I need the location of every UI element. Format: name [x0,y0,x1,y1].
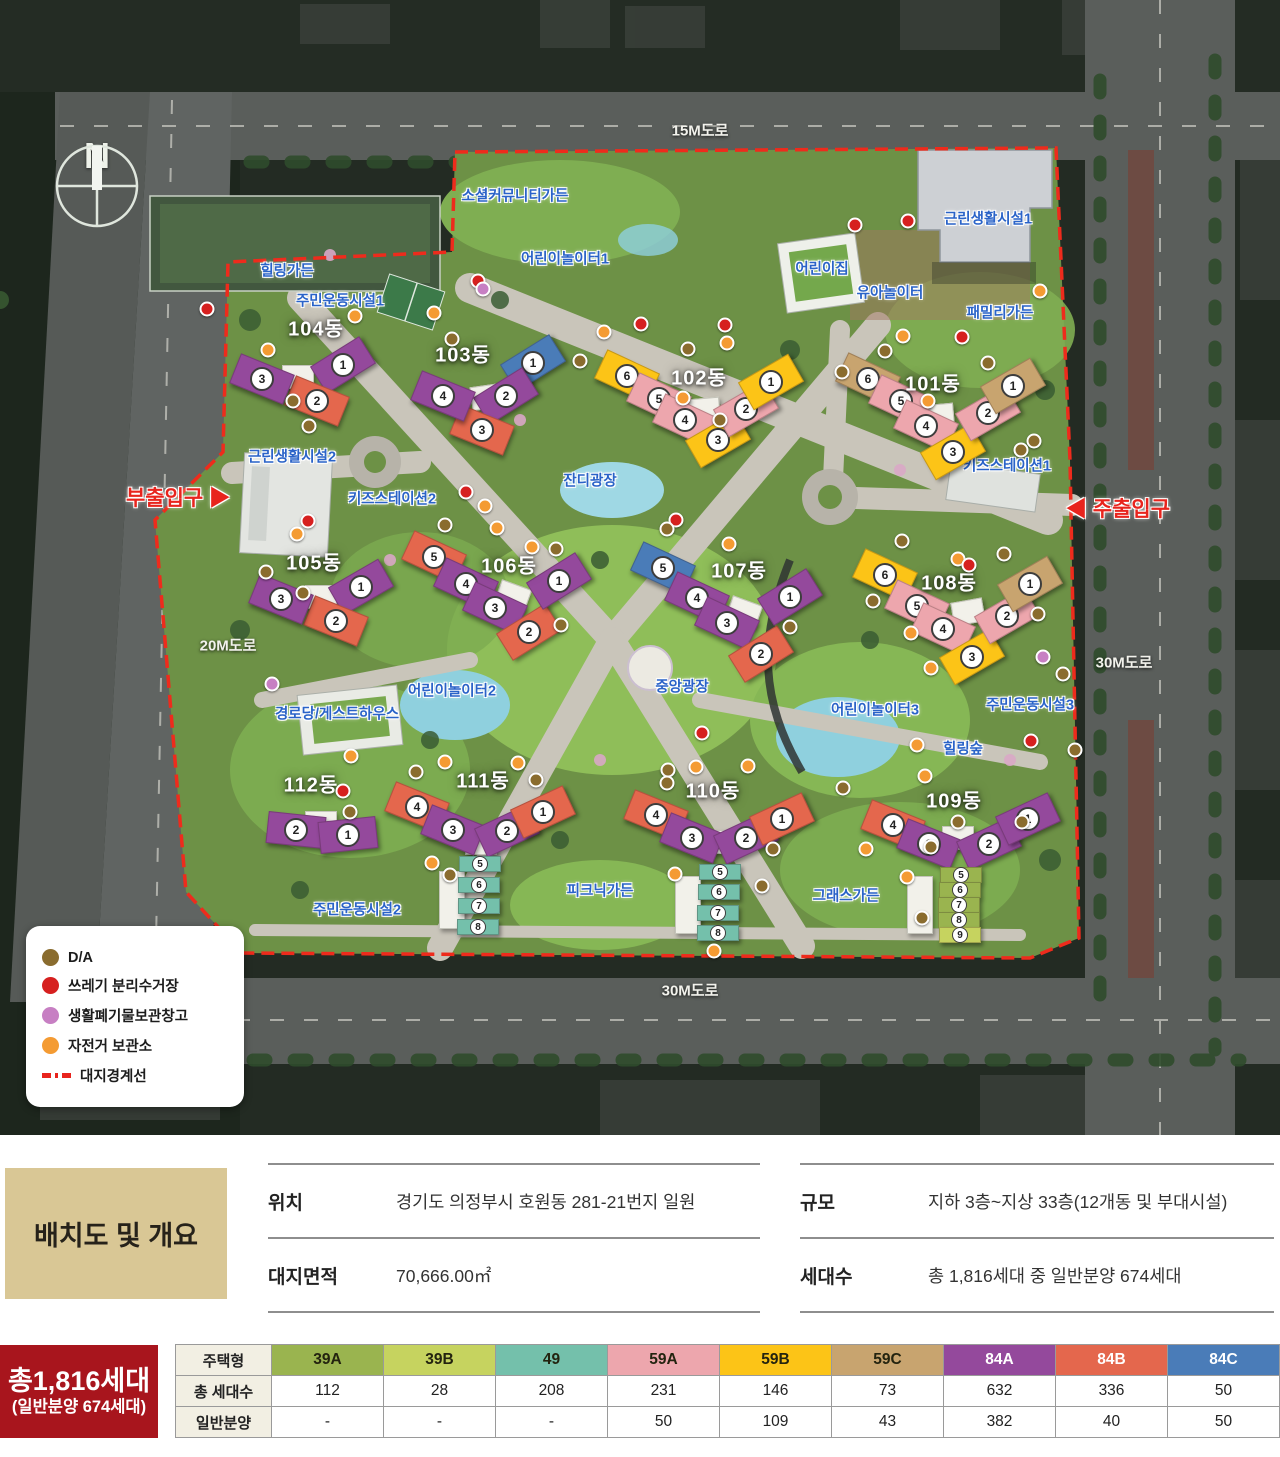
general-sale-value-59A: 50 [607,1406,720,1438]
building-label: 111동 [456,765,510,794]
unit-number-badge: 1 [1018,572,1042,596]
da-dot [343,805,358,820]
building-label: 103동 [435,339,491,368]
unit-number-badge: 4 [644,803,668,827]
unit-block-type-84B: 1 [510,785,576,839]
facility-label: 키즈스테이션2 [348,488,436,509]
unit-number-badge: 1 [336,823,360,847]
bicycle-storage-dot [900,870,915,885]
unit-type-grid: 주택형39A39B4959A59B59C84A84B84C총 세대수112282… [176,1345,1280,1438]
compass-rose-icon [52,138,142,234]
total-value-49: 208 [495,1375,608,1407]
da-dot [681,342,696,357]
recycling-station-dot [962,558,977,573]
facility-label: 힐링숲 [943,738,983,759]
building-label: 109동 [926,785,982,814]
unit-block-type-49: 7 [697,905,739,921]
recycle-legend-icon [42,977,59,994]
household-waste-dot [265,677,280,692]
unit-number-badge: 4 [914,414,938,438]
da-dot [259,565,274,580]
facility-label: 근린생활시설1 [944,208,1032,229]
row-header-total: 총 세대수 [175,1375,272,1407]
da-dot [895,534,910,549]
site-plan-map: 15M도로20M도로30M도로30M도로부출입구 ▶◀ 주출입구소셜커뮤니티가든… [0,0,1280,1135]
unit-block-type-84A: 1 [317,816,378,854]
unit-number-badge: 3 [941,440,965,464]
unit-number-badge: 1 [1001,374,1025,398]
unit-number-badge: 2 [494,384,518,408]
total-value-39B: 28 [383,1375,496,1407]
da-legend-icon [42,949,59,966]
info-label: 대지면적 [268,1262,396,1289]
legend-item-label: D/A [68,950,93,966]
unit-number-badge: 1 [759,370,783,394]
unit-number-badge: 3 [960,645,984,669]
unit-type-table-section: 총1,816세대 (일반분양 674세대) 주택형39A39B4959A59B5… [0,1345,1280,1440]
household-waste-dot [476,282,491,297]
unit-number-badge: 2 [284,818,308,842]
da-dot [755,879,770,894]
da-dot [1031,607,1046,622]
general-sale-value-84A: 382 [943,1406,1056,1438]
da-dot [573,354,588,369]
legend-item-recycle: 쓰레기 분리수거장 [42,975,230,996]
unit-number-badge: 3 [441,818,465,842]
facility-label: 유아놀이터 [857,282,924,303]
sub-entrance-label: 부출입구 ▶ [126,482,230,512]
recycling-station-dot [634,317,649,332]
total-households-badge: 총1,816세대 (일반분양 674세대) [0,1345,158,1438]
overview-left-column: 위치 경기도 의정부시 호원동 281-21번지 일원 대지면적 70,666.… [268,1163,760,1313]
total-value-59B: 146 [719,1375,832,1407]
da-dot [924,840,939,855]
general-sale-value-59B: 109 [719,1406,832,1438]
building-label: 101동 [905,368,961,397]
facility-label: 소셜커뮤니티가든 [462,185,569,206]
bicycle-storage-dot [668,867,683,882]
da-dot [296,586,311,601]
facility-label: 주민운동시설2 [313,899,401,920]
type-header-59C: 59C [831,1344,944,1376]
bicycle-storage-dot [290,527,305,542]
unit-number-badge: 3 [470,418,494,442]
type-header-84C: 84C [1167,1344,1280,1376]
unit-block-type-39A: 8 [938,912,980,928]
bicycle-storage-dot [689,760,704,775]
bike-legend-icon [42,1037,59,1054]
compass: N [52,138,142,174]
bicycle-storage-dot [904,626,919,641]
facility-label: 어린이집 [795,258,848,279]
bicycle-storage-dot [921,394,936,409]
bicycle-storage-dot [722,537,737,552]
da-dot [878,344,893,359]
unit-number-badge: 6 [711,884,727,900]
da-dot [766,842,781,857]
info-row-location: 위치 경기도 의정부시 호원동 281-21번지 일원 [268,1163,760,1237]
da-dot [1056,667,1071,682]
general-sale-value-49: - [495,1406,608,1438]
da-dot [302,419,317,434]
da-dot [951,815,966,830]
da-dot [549,542,564,557]
unit-number-badge: 2 [324,609,348,633]
bicycle-storage-dot [427,306,442,321]
facility-label: 힐링가든 [260,260,313,281]
info-row-scale: 규모 지하 3층~지상 33층(12개동 및 부대시설) [800,1163,1274,1237]
da-dot [835,365,850,380]
unit-block-type-39A: 7 [938,897,980,913]
bicycle-storage-dot [707,944,722,959]
da-dot [443,868,458,883]
recycling-station-dot [695,726,710,741]
da-dot [445,332,460,347]
map-legend: D/A쓰레기 분리수거장생활폐기물보관창고자전거 보관소대지경계선 [26,926,244,1107]
bicycle-storage-dot [676,391,691,406]
road-label: 15M도로 [672,120,729,141]
legend-item-da: D/A [42,949,230,966]
info-row-households: 세대수 총 1,816세대 중 일반분양 674세대 [800,1237,1274,1313]
total-value-84C: 50 [1167,1375,1280,1407]
legend-item-waste: 생활폐기물보관창고 [42,1005,230,1026]
overview-section: 배치도 및 개요 위치 경기도 의정부시 호원동 281-21번지 일원 대지면… [0,1135,1280,1345]
type-header-39B: 39B [383,1344,496,1376]
building-label: 105동 [286,547,342,576]
da-dot [866,594,881,609]
unit-number-badge: 4 [673,408,697,432]
facility-label: 그래스가든 [813,885,880,906]
facility-label: 패밀리가든 [967,302,1034,323]
unit-number-badge: 3 [680,826,704,850]
bicycle-storage-dot [859,842,874,857]
row-header-type: 주택형 [175,1344,272,1376]
facility-label: 주민운동시설3 [986,694,1074,715]
building-label: 107동 [711,555,767,584]
bicycle-storage-dot [511,756,526,771]
building-label: 110동 [686,775,741,804]
building-label: 112동 [284,769,339,798]
total-value-39A: 112 [271,1375,384,1407]
recycling-station-dot [1024,734,1039,749]
unit-number-badge: 1 [547,569,571,593]
bicycle-storage-dot [918,769,933,784]
facility-label: 주민운동시설1 [296,290,384,311]
building-label: 102동 [671,362,727,391]
total-households-line2: (일반분양 674세대) [12,1398,146,1417]
bicycle-storage-dot [425,856,440,871]
recycling-station-dot [301,514,316,529]
unit-number-badge: 1 [349,575,373,599]
unit-number-badge: 2 [749,642,773,666]
unit-block-type-49: 5 [699,864,741,880]
section-title: 배치도 및 개요 [5,1168,227,1299]
info-label: 규모 [800,1188,928,1215]
unit-number-badge: 1 [331,353,355,377]
recycling-station-dot [718,318,733,333]
unit-number-badge: 3 [250,367,274,391]
da-dot [1014,443,1029,458]
type-header-84A: 84A [943,1344,1056,1376]
da-dot [660,776,675,791]
recycling-station-dot [848,218,863,233]
road-label: 30M도로 [662,980,719,1001]
unit-number-badge: 4 [431,384,455,408]
unit-block-type-49: 8 [697,925,739,941]
unit-number-badge: 1 [531,800,555,824]
bicycle-storage-dot [261,343,276,358]
facility-label: 근린생활시설2 [248,446,336,467]
type-header-84B: 84B [1055,1344,1168,1376]
info-value: 경기도 의정부시 호원동 281-21번지 일원 [396,1189,695,1214]
unit-block-type-39A: 6 [939,882,981,898]
bicycle-storage-dot [924,661,939,676]
bicycle-storage-dot [525,540,540,555]
boundary-line-icon [42,1073,72,1078]
bicycle-storage-dot [741,759,756,774]
unit-number-badge: 7 [710,905,726,921]
site-plan-page: 15M도로20M도로30M도로30M도로부출입구 ▶◀ 주출입구소셜커뮤니티가든… [0,0,1280,1457]
da-dot [1027,434,1042,449]
legend-item-label: 자전거 보관소 [68,1035,152,1056]
info-label: 위치 [268,1188,396,1215]
overview-right-column: 규모 지하 3층~지상 33층(12개동 및 부대시설) 세대수 총 1,816… [800,1163,1274,1313]
total-value-59A: 231 [607,1375,720,1407]
facility-label: 중앙광장 [655,676,708,697]
general-sale-value-39B: - [383,1406,496,1438]
unit-block-type-49: 8 [457,919,499,935]
info-label: 세대수 [800,1262,928,1289]
general-sale-value-39A: - [271,1406,384,1438]
unit-number-badge: 5 [472,856,488,872]
bicycle-storage-dot [896,329,911,344]
da-dot [1015,815,1030,830]
info-value: 지하 3층~지상 33층(12개동 및 부대시설) [928,1189,1227,1214]
recycling-station-dot [955,330,970,345]
unit-number-badge: 3 [269,587,293,611]
info-value: 총 1,816세대 중 일반분양 674세대 [928,1263,1181,1288]
bicycle-storage-dot [597,325,612,340]
bicycle-storage-dot [490,521,505,536]
type-header-59B: 59B [719,1344,832,1376]
unit-number-badge: 5 [953,867,969,883]
general-sale-value-84B: 40 [1055,1406,1168,1438]
da-dot [286,394,301,409]
bicycle-storage-dot [344,749,359,764]
unit-number-badge: 3 [483,596,507,620]
general-sale-value-84C: 50 [1167,1406,1280,1438]
unit-block-type-49: 5 [459,856,501,872]
facility-label: 피크닉가든 [567,880,634,901]
recycling-station-dot [200,302,215,317]
main-entrance-label: ◀ 주출입구 [1066,493,1170,523]
info-value: 70,666.00㎡ [396,1263,491,1288]
unit-number-badge: 2 [517,620,541,644]
da-dot [783,620,798,635]
legend-item-bike: 자전거 보관소 [42,1035,230,1056]
da-dot [836,781,851,796]
recycling-station-dot [459,485,474,500]
legend-item-label: 쓰레기 분리수거장 [68,975,179,996]
total-value-84A: 632 [943,1375,1056,1407]
facility-label: 어린이놀이터3 [831,699,919,720]
unit-number-badge: 5 [651,556,675,580]
unit-block-type-84B: 1 [749,792,815,846]
legend-item-boundary: 대지경계선 [42,1065,230,1086]
recycling-station-dot [901,214,916,229]
household-waste-dot [1036,650,1051,665]
total-households-line1: 총1,816세대 [8,1366,150,1397]
unit-block-type-39B: 9 [939,927,981,943]
type-header-59A: 59A [607,1344,720,1376]
da-dot [660,522,675,537]
unit-block-type-84A: 3 [229,353,295,404]
unit-number-badge: 8 [951,912,967,928]
da-dot [915,911,930,926]
road-label: 20M도로 [200,635,257,656]
unit-number-badge: 8 [470,919,486,935]
unit-number-badge: 4 [931,617,955,641]
bicycle-storage-dot [910,738,925,753]
facility-label: 어린이놀이터1 [521,248,609,269]
type-header-49: 49 [495,1344,608,1376]
facility-label: 키즈스테이션1 [963,455,1051,476]
da-dot [713,413,728,428]
unit-number-badge: 3 [715,611,739,635]
bicycle-storage-dot [348,309,363,324]
da-dot [438,518,453,533]
bicycle-storage-dot [438,755,453,770]
legend-item-label: 대지경계선 [80,1065,147,1086]
road-label: 30M도로 [1096,652,1153,673]
unit-number-badge: 8 [710,925,726,941]
unit-block-type-49: 6 [698,884,740,900]
da-dot [409,765,424,780]
general-sale-value-59C: 43 [831,1406,944,1438]
unit-number-badge: 4 [405,795,429,819]
unit-number-badge: 6 [873,563,897,587]
da-dot [981,356,996,371]
building-label: 104동 [288,313,344,342]
unit-number-badge: 7 [471,898,487,914]
total-value-84B: 336 [1055,1375,1168,1407]
unit-number-badge: 2 [977,832,1001,856]
da-dot [997,547,1012,562]
unit-number-badge: 6 [471,877,487,893]
bicycle-storage-dot [720,336,735,351]
unit-number-badge: 9 [952,927,968,943]
da-dot [554,618,569,633]
total-value-59C: 73 [831,1375,944,1407]
unit-block-type-49: 7 [458,898,500,914]
info-row-site-area: 대지면적 70,666.00㎡ [268,1237,760,1313]
unit-number-badge: 5 [712,864,728,880]
unit-number-badge: 7 [951,897,967,913]
facility-label: 경로당/게스트하우스 [275,703,399,724]
da-dot [1068,743,1083,758]
unit-block-type-39A: 5 [940,867,982,883]
legend-item-label: 생활폐기물보관창고 [68,1005,188,1026]
waste-legend-icon [42,1007,59,1024]
type-header-39A: 39A [271,1344,384,1376]
unit-number-badge: 1 [778,585,802,609]
facility-label: 잔디광장 [563,470,616,491]
bicycle-storage-dot [1033,284,1048,299]
row-header-general: 일반분양 [175,1406,272,1438]
da-dot [529,773,544,788]
recycling-station-dot [336,784,351,799]
unit-block-type-84A: 4 [410,370,476,421]
unit-number-badge: 6 [952,882,968,898]
unit-number-badge: 1 [770,807,794,831]
facility-label: 어린이놀이터2 [408,680,496,701]
unit-block-type-49: 6 [458,877,500,893]
unit-number-badge: 2 [305,389,329,413]
bicycle-storage-dot [478,499,493,514]
